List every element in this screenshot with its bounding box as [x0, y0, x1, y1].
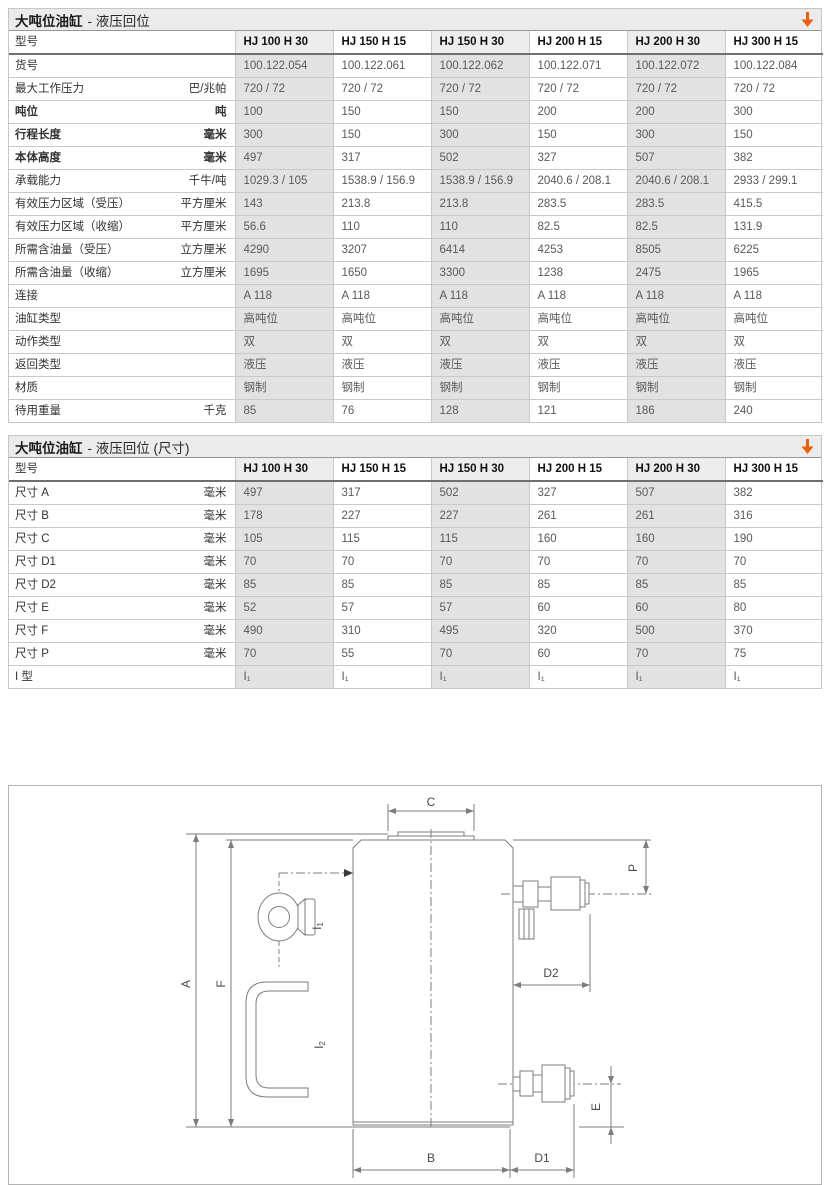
column-header: HJ 200 H 30 — [627, 31, 725, 54]
table-row: 尺寸 E毫米525757606080 — [9, 597, 823, 620]
value-cell: 80 — [725, 597, 823, 620]
value-cell: 85 — [235, 574, 333, 597]
table-row: 所需含油量（收缩）立方厘米169516503300123824751965 — [9, 262, 823, 285]
column-header: HJ 300 H 15 — [725, 31, 823, 54]
value-cell: 3300 — [431, 262, 529, 285]
value-cell: 56.6 — [235, 216, 333, 239]
value-cell: 283.5 — [627, 193, 725, 216]
value-cell: 钢制 — [333, 377, 431, 400]
table-row: 本体高度毫米497317502327507382 — [9, 147, 823, 170]
row-label-cell: I 型 — [9, 666, 235, 689]
value-cell: 327 — [529, 147, 627, 170]
coupler-bottom — [513, 1065, 574, 1102]
dimension-diagram: I1 I2 — [8, 785, 822, 1185]
value-cell: 300 — [235, 124, 333, 147]
value-cell: 70 — [333, 551, 431, 574]
value-cell: 52 — [235, 597, 333, 620]
row-label-cell: 尺寸 C毫米 — [9, 528, 235, 551]
value-cell: 100.122.061 — [333, 54, 431, 78]
value-cell: A 118 — [529, 285, 627, 308]
value-cell: 227 — [431, 505, 529, 528]
value-cell: A 118 — [235, 285, 333, 308]
value-cell: 钢制 — [529, 377, 627, 400]
row-label-cell: 尺寸 D1毫米 — [9, 551, 235, 574]
value-cell: 100.122.072 — [627, 54, 725, 78]
row-label-cell: 最大工作压力巴/兆帕 — [9, 78, 235, 101]
value-cell: 高吨位 — [333, 308, 431, 331]
value-cell: 液压 — [235, 354, 333, 377]
row-label-cell: 尺寸 F毫米 — [9, 620, 235, 643]
row-label-cell: 待用重量千克 — [9, 400, 235, 423]
value-cell: 液压 — [333, 354, 431, 377]
row-label-cell: 本体高度毫米 — [9, 147, 235, 170]
value-cell: 317 — [333, 147, 431, 170]
dim-e-label: E — [589, 1103, 603, 1111]
dim-p-label: P — [626, 864, 640, 872]
value-cell: 钢制 — [431, 377, 529, 400]
row-label-cell: 材质 — [9, 377, 235, 400]
dimensions-table-block: 大吨位油缸 - 液压回位 (尺寸) 型号HJ 100 H 30HJ 150 H … — [8, 435, 822, 689]
value-cell: 双 — [235, 331, 333, 354]
value-cell: 8505 — [627, 239, 725, 262]
value-cell: 500 — [627, 620, 725, 643]
value-cell: 高吨位 — [235, 308, 333, 331]
value-cell: 110 — [431, 216, 529, 239]
value-cell: 105 — [235, 528, 333, 551]
value-cell: 150 — [725, 124, 823, 147]
value-cell: 2040.6 / 208.1 — [627, 170, 725, 193]
value-cell: 60 — [529, 643, 627, 666]
value-cell: 190 — [725, 528, 823, 551]
value-cell: 160 — [627, 528, 725, 551]
table-row: 行程长度毫米300150300150300150 — [9, 124, 823, 147]
table-row: I 型I₁I₁I₁I₁I₁I₁ — [9, 666, 823, 689]
value-cell: 4290 — [235, 239, 333, 262]
value-cell: 60 — [627, 597, 725, 620]
value-cell: I₁ — [235, 666, 333, 689]
row-label-cell: 尺寸 B毫米 — [9, 505, 235, 528]
value-cell: 327 — [529, 481, 627, 505]
table-row: 尺寸 B毫米178227227261261316 — [9, 505, 823, 528]
cylinder-drawing: I1 I2 — [9, 786, 821, 1184]
value-cell: 1965 — [725, 262, 823, 285]
value-cell: A 118 — [725, 285, 823, 308]
row-label-cell: 所需含油量（收缩）立方厘米 — [9, 262, 235, 285]
value-cell: 300 — [627, 124, 725, 147]
value-cell: 720 / 72 — [333, 78, 431, 101]
table-row: 货号100.122.054100.122.061100.122.062100.1… — [9, 54, 823, 78]
column-header: HJ 150 H 15 — [333, 31, 431, 54]
dim-b-label: B — [427, 1151, 435, 1165]
value-cell: 6225 — [725, 239, 823, 262]
value-cell: 双 — [431, 331, 529, 354]
value-cell: 150 — [333, 101, 431, 124]
dimensions-table-title: 大吨位油缸 — [15, 437, 83, 457]
value-cell: 液压 — [627, 354, 725, 377]
value-cell: 85 — [627, 574, 725, 597]
callout-i2-label: I2 — [312, 1041, 327, 1049]
column-header-model: 型号 — [9, 31, 235, 54]
value-cell: 1695 — [235, 262, 333, 285]
column-header: HJ 200 H 15 — [529, 458, 627, 481]
value-cell: 70 — [725, 551, 823, 574]
value-cell: 2933 / 299.1 — [725, 170, 823, 193]
column-header: HJ 200 H 30 — [627, 458, 725, 481]
value-cell: A 118 — [431, 285, 529, 308]
value-cell: 2040.6 / 208.1 — [529, 170, 627, 193]
value-cell: 415.5 — [725, 193, 823, 216]
value-cell: 钢制 — [627, 377, 725, 400]
dim-a-label: A — [179, 980, 193, 988]
column-header: HJ 300 H 15 — [725, 458, 823, 481]
value-cell: 70 — [235, 551, 333, 574]
column-header: HJ 100 H 30 — [235, 458, 333, 481]
header-row: 型号HJ 100 H 30HJ 150 H 15HJ 150 H 30HJ 20… — [9, 458, 823, 481]
value-cell: 液压 — [529, 354, 627, 377]
value-cell: 720 / 72 — [627, 78, 725, 101]
column-header: HJ 150 H 30 — [431, 31, 529, 54]
value-cell: 720 / 72 — [725, 78, 823, 101]
table-row: 吨位吨100150150200200300 — [9, 101, 823, 124]
table-row: 有效压力区域（受压）平方厘米143213.8213.8283.5283.5415… — [9, 193, 823, 216]
table-row: 尺寸 F毫米490310495320500370 — [9, 620, 823, 643]
row-label-cell: 有效压力区域（收缩）平方厘米 — [9, 216, 235, 239]
spec-table-block: 大吨位油缸 - 液压回位 型号HJ 100 H 30HJ 150 H 15HJ … — [8, 8, 822, 423]
value-cell: 200 — [529, 101, 627, 124]
value-cell: 70 — [627, 643, 725, 666]
value-cell: 85 — [431, 574, 529, 597]
row-label-cell: 尺寸 P毫米 — [9, 643, 235, 666]
value-cell: 370 — [725, 620, 823, 643]
value-cell: 3207 — [333, 239, 431, 262]
value-cell: 178 — [235, 505, 333, 528]
table-row: 尺寸 C毫米105115115160160190 — [9, 528, 823, 551]
value-cell: 82.5 — [627, 216, 725, 239]
value-cell: 497 — [235, 147, 333, 170]
value-cell: I₁ — [725, 666, 823, 689]
spec-table-title-bar: 大吨位油缸 - 液压回位 — [9, 9, 821, 31]
datasheet-page: 大吨位油缸 - 液压回位 型号HJ 100 H 30HJ 150 H 15HJ … — [0, 0, 830, 1159]
value-cell: 310 — [333, 620, 431, 643]
value-cell: 钢制 — [235, 377, 333, 400]
spec-table-title: 大吨位油缸 — [15, 10, 83, 30]
value-cell: 液压 — [431, 354, 529, 377]
table-row: 有效压力区域（收缩）平方厘米56.611011082.582.5131.9 — [9, 216, 823, 239]
row-label-cell: 吨位吨 — [9, 101, 235, 124]
value-cell: 261 — [627, 505, 725, 528]
value-cell: 高吨位 — [431, 308, 529, 331]
value-cell: 115 — [431, 528, 529, 551]
value-cell: 6414 — [431, 239, 529, 262]
table-row: 返回类型液压液压液压液压液压液压 — [9, 354, 823, 377]
dim-d1-label: D1 — [534, 1151, 550, 1165]
value-cell: 490 — [235, 620, 333, 643]
value-cell: 1538.9 / 156.9 — [333, 170, 431, 193]
column-header-model: 型号 — [9, 458, 235, 481]
table-row: 动作类型双双双双双双 — [9, 331, 823, 354]
value-cell: 82.5 — [529, 216, 627, 239]
row-label-cell: 尺寸 E毫米 — [9, 597, 235, 620]
value-cell: 双 — [725, 331, 823, 354]
value-cell: 502 — [431, 147, 529, 170]
row-label-cell: 货号 — [9, 54, 235, 78]
value-cell: 382 — [725, 481, 823, 505]
value-cell: 110 — [333, 216, 431, 239]
table-row: 待用重量千克8576128121186240 — [9, 400, 823, 423]
value-cell: 85 — [725, 574, 823, 597]
value-cell: 200 — [627, 101, 725, 124]
row-label-cell: 动作类型 — [9, 331, 235, 354]
value-cell: 1538.9 / 156.9 — [431, 170, 529, 193]
row-label-cell: 所需含油量（受压）立方厘米 — [9, 239, 235, 262]
value-cell: 213.8 — [333, 193, 431, 216]
value-cell: A 118 — [627, 285, 725, 308]
spec-table-subtitle: - 液压回位 — [88, 10, 150, 30]
row-label-cell: 行程长度毫米 — [9, 124, 235, 147]
dim-f-label: F — [214, 980, 228, 987]
value-cell: 283.5 — [529, 193, 627, 216]
value-cell: 507 — [627, 147, 725, 170]
cylinder-body — [353, 840, 513, 1125]
value-cell: 100.122.054 — [235, 54, 333, 78]
value-cell: 75 — [725, 643, 823, 666]
value-cell: 高吨位 — [725, 308, 823, 331]
value-cell: 160 — [529, 528, 627, 551]
value-cell: 70 — [431, 643, 529, 666]
dimensions-table: 型号HJ 100 H 30HJ 150 H 15HJ 150 H 30HJ 20… — [9, 458, 823, 688]
value-cell: 316 — [725, 505, 823, 528]
value-cell: 85 — [529, 574, 627, 597]
row-label-cell: 返回类型 — [9, 354, 235, 377]
carry-handle — [246, 982, 308, 1097]
value-cell: 131.9 — [725, 216, 823, 239]
value-cell: 720 / 72 — [235, 78, 333, 101]
column-header: HJ 150 H 30 — [431, 458, 529, 481]
value-cell: 双 — [529, 331, 627, 354]
dimensions-table-title-bar: 大吨位油缸 - 液压回位 (尺寸) — [9, 436, 821, 458]
value-cell: 双 — [333, 331, 431, 354]
row-label-cell: 尺寸 D2毫米 — [9, 574, 235, 597]
value-cell: 150 — [333, 124, 431, 147]
dimensions-table-subtitle: - 液压回位 (尺寸) — [88, 437, 190, 457]
value-cell: 55 — [333, 643, 431, 666]
value-cell: 70 — [529, 551, 627, 574]
value-cell: 1029.3 / 105 — [235, 170, 333, 193]
coupler-top — [513, 877, 589, 939]
value-cell: 240 — [725, 400, 823, 423]
value-cell: I₁ — [529, 666, 627, 689]
down-arrow-icon[interactable] — [800, 438, 815, 455]
value-cell: 121 — [529, 400, 627, 423]
value-cell: 60 — [529, 597, 627, 620]
value-cell: 70 — [431, 551, 529, 574]
table-row: 尺寸 P毫米705570607075 — [9, 643, 823, 666]
value-cell: 100 — [235, 101, 333, 124]
value-cell: 720 / 72 — [529, 78, 627, 101]
value-cell: 300 — [725, 101, 823, 124]
value-cell: 507 — [627, 481, 725, 505]
value-cell: 382 — [725, 147, 823, 170]
value-cell: 186 — [627, 400, 725, 423]
spec-table: 型号HJ 100 H 30HJ 150 H 15HJ 150 H 30HJ 20… — [9, 31, 823, 422]
value-cell: 213.8 — [431, 193, 529, 216]
value-cell: 85 — [235, 400, 333, 423]
table-row: 所需含油量（受压）立方厘米429032076414425385056225 — [9, 239, 823, 262]
value-cell: 4253 — [529, 239, 627, 262]
value-cell: 高吨位 — [627, 308, 725, 331]
table-row: 尺寸 D1毫米707070707070 — [9, 551, 823, 574]
value-cell: 128 — [431, 400, 529, 423]
lifting-eye — [258, 893, 315, 941]
value-cell: 497 — [235, 481, 333, 505]
value-cell: I₁ — [627, 666, 725, 689]
header-row: 型号HJ 100 H 30HJ 150 H 15HJ 150 H 30HJ 20… — [9, 31, 823, 54]
value-cell: 高吨位 — [529, 308, 627, 331]
value-cell: 317 — [333, 481, 431, 505]
value-cell: 双 — [627, 331, 725, 354]
value-cell: A 118 — [333, 285, 431, 308]
row-label-cell: 尺寸 A毫米 — [9, 481, 235, 505]
row-label-cell: 有效压力区域（受压）平方厘米 — [9, 193, 235, 216]
value-cell: 85 — [333, 574, 431, 597]
value-cell: 100.122.062 — [431, 54, 529, 78]
row-label-cell: 承载能力千牛/吨 — [9, 170, 235, 193]
value-cell: 2475 — [627, 262, 725, 285]
column-header: HJ 100 H 30 — [235, 31, 333, 54]
value-cell: 1650 — [333, 262, 431, 285]
value-cell: 502 — [431, 481, 529, 505]
value-cell: 150 — [431, 101, 529, 124]
value-cell: 150 — [529, 124, 627, 147]
value-cell: 300 — [431, 124, 529, 147]
value-cell: 143 — [235, 193, 333, 216]
table-row: 连接A 118A 118A 118A 118A 118A 118 — [9, 285, 823, 308]
value-cell: 320 — [529, 620, 627, 643]
value-cell: 1238 — [529, 262, 627, 285]
row-label-cell: 油缸类型 — [9, 308, 235, 331]
value-cell: 57 — [333, 597, 431, 620]
table-row: 油缸类型高吨位高吨位高吨位高吨位高吨位高吨位 — [9, 308, 823, 331]
value-cell: I₁ — [431, 666, 529, 689]
table-row: 尺寸 A毫米497317502327507382 — [9, 481, 823, 505]
value-cell: 261 — [529, 505, 627, 528]
table-row: 材质钢制钢制钢制钢制钢制钢制 — [9, 377, 823, 400]
value-cell: 100.122.084 — [725, 54, 823, 78]
value-cell: I₁ — [333, 666, 431, 689]
value-cell: 57 — [431, 597, 529, 620]
column-header: HJ 200 H 15 — [529, 31, 627, 54]
value-cell: 液压 — [725, 354, 823, 377]
value-cell: 227 — [333, 505, 431, 528]
value-cell: 495 — [431, 620, 529, 643]
value-cell: 76 — [333, 400, 431, 423]
column-header: HJ 150 H 15 — [333, 458, 431, 481]
value-cell: 100.122.071 — [529, 54, 627, 78]
down-arrow-icon[interactable] — [800, 11, 815, 28]
value-cell: 70 — [235, 643, 333, 666]
dim-c-label: C — [427, 795, 436, 809]
row-label-cell: 连接 — [9, 285, 235, 308]
table-row: 最大工作压力巴/兆帕720 / 72720 / 72720 / 72720 / … — [9, 78, 823, 101]
value-cell: 720 / 72 — [431, 78, 529, 101]
table-row: 承载能力千牛/吨1029.3 / 1051538.9 / 156.91538.9… — [9, 170, 823, 193]
value-cell: 115 — [333, 528, 431, 551]
value-cell: 70 — [627, 551, 725, 574]
dim-d2-label: D2 — [543, 966, 559, 980]
value-cell: 钢制 — [725, 377, 823, 400]
table-row: 尺寸 D2毫米858585858585 — [9, 574, 823, 597]
